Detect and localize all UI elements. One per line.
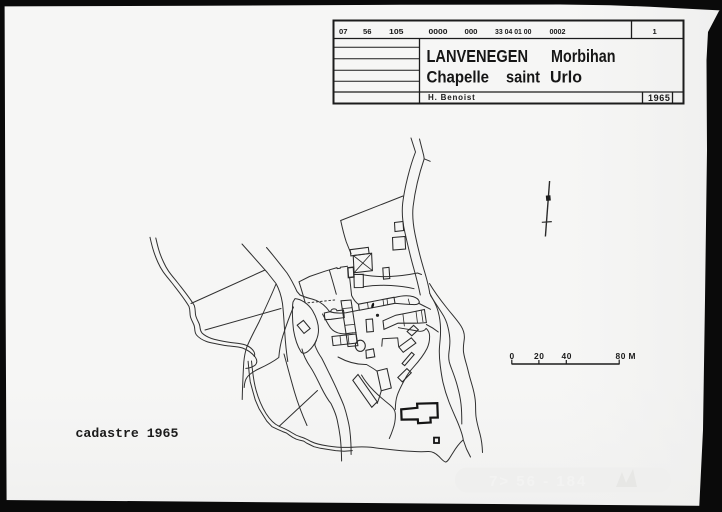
svg-text:0000: 0000	[429, 27, 448, 36]
svg-text:105: 105	[389, 27, 404, 36]
svg-text:Chapelle: Chapelle	[427, 69, 490, 87]
svg-text:000: 000	[465, 27, 478, 36]
svg-text:1965: 1965	[648, 93, 670, 103]
svg-text:Urlo: Urlo	[550, 69, 582, 87]
svg-text:33 04 01 00: 33 04 01 00	[495, 27, 532, 36]
svg-text:H. Benoist: H. Benoist	[428, 93, 476, 102]
svg-text:0002: 0002	[550, 27, 566, 36]
svg-text:LANVENEGEN: LANVENEGEN	[427, 46, 529, 66]
svg-text:cadastre 1965: cadastre 1965	[76, 426, 179, 441]
svg-text:7> 56 - 184: 7> 56 - 184	[489, 473, 587, 490]
svg-text:Morbihan: Morbihan	[551, 46, 616, 66]
svg-text:saint: saint	[506, 69, 540, 87]
svg-text:M: M	[629, 351, 636, 361]
svg-text:0: 0	[510, 351, 515, 361]
svg-text:07: 07	[339, 27, 348, 36]
svg-text:56: 56	[363, 27, 372, 36]
svg-text:80: 80	[616, 351, 627, 361]
svg-text:40: 40	[562, 351, 573, 361]
svg-text:20: 20	[534, 351, 545, 361]
